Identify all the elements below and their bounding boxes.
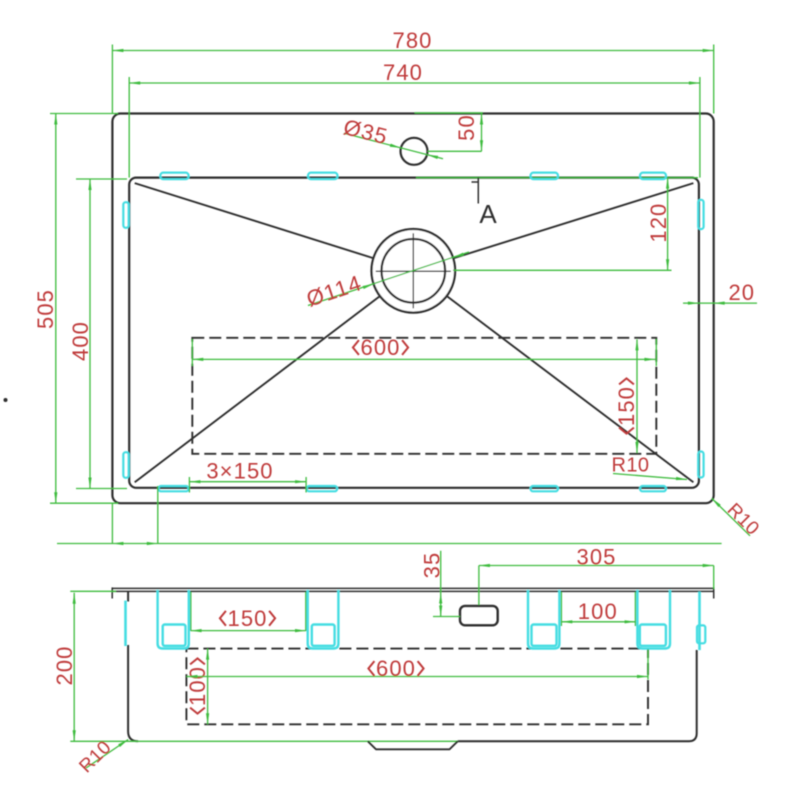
- svg-text:120: 120: [646, 203, 671, 243]
- svg-text:400: 400: [68, 321, 93, 361]
- svg-text:505: 505: [33, 289, 58, 329]
- svg-text:20: 20: [728, 280, 755, 305]
- svg-text:R10: R10: [612, 455, 650, 477]
- svg-text:50: 50: [454, 114, 479, 141]
- svg-text:780: 780: [392, 28, 432, 53]
- svg-text:35: 35: [420, 552, 445, 579]
- svg-text:200: 200: [52, 645, 77, 685]
- svg-text:600: 600: [360, 335, 400, 360]
- svg-text:150: 150: [614, 386, 639, 426]
- svg-text:100: 100: [185, 666, 210, 706]
- svg-text:600: 600: [376, 656, 416, 681]
- svg-text:150: 150: [227, 606, 267, 631]
- svg-text:100: 100: [578, 599, 618, 624]
- svg-text:305: 305: [576, 545, 616, 570]
- svg-text:740: 740: [383, 60, 423, 85]
- svg-text:A: A: [479, 199, 497, 229]
- svg-text:3×150: 3×150: [206, 459, 273, 484]
